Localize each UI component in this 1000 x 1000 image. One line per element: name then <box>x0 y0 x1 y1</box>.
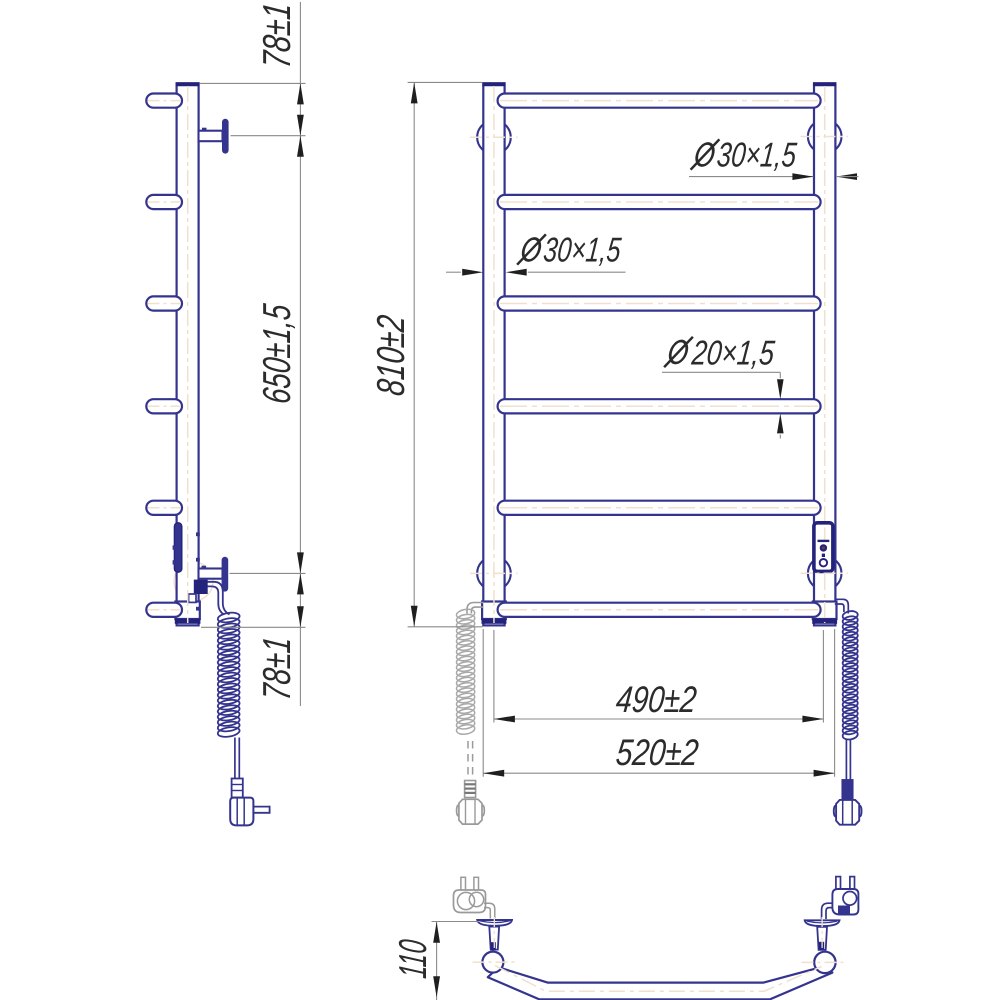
svg-text:78±1: 78±1 <box>256 635 299 703</box>
svg-text:520±2: 520±2 <box>614 731 701 773</box>
svg-text:20×1,5: 20×1,5 <box>689 335 776 373</box>
svg-text:30×1,5: 30×1,5 <box>715 137 799 175</box>
svg-text:30×1,5: 30×1,5 <box>542 232 624 270</box>
svg-text:110: 110 <box>392 938 435 981</box>
svg-text:78±1: 78±1 <box>256 1 299 71</box>
svg-text:650±1,5: 650±1,5 <box>256 302 299 406</box>
svg-text:810±2: 810±2 <box>370 313 413 398</box>
svg-text:490±2: 490±2 <box>614 678 699 720</box>
